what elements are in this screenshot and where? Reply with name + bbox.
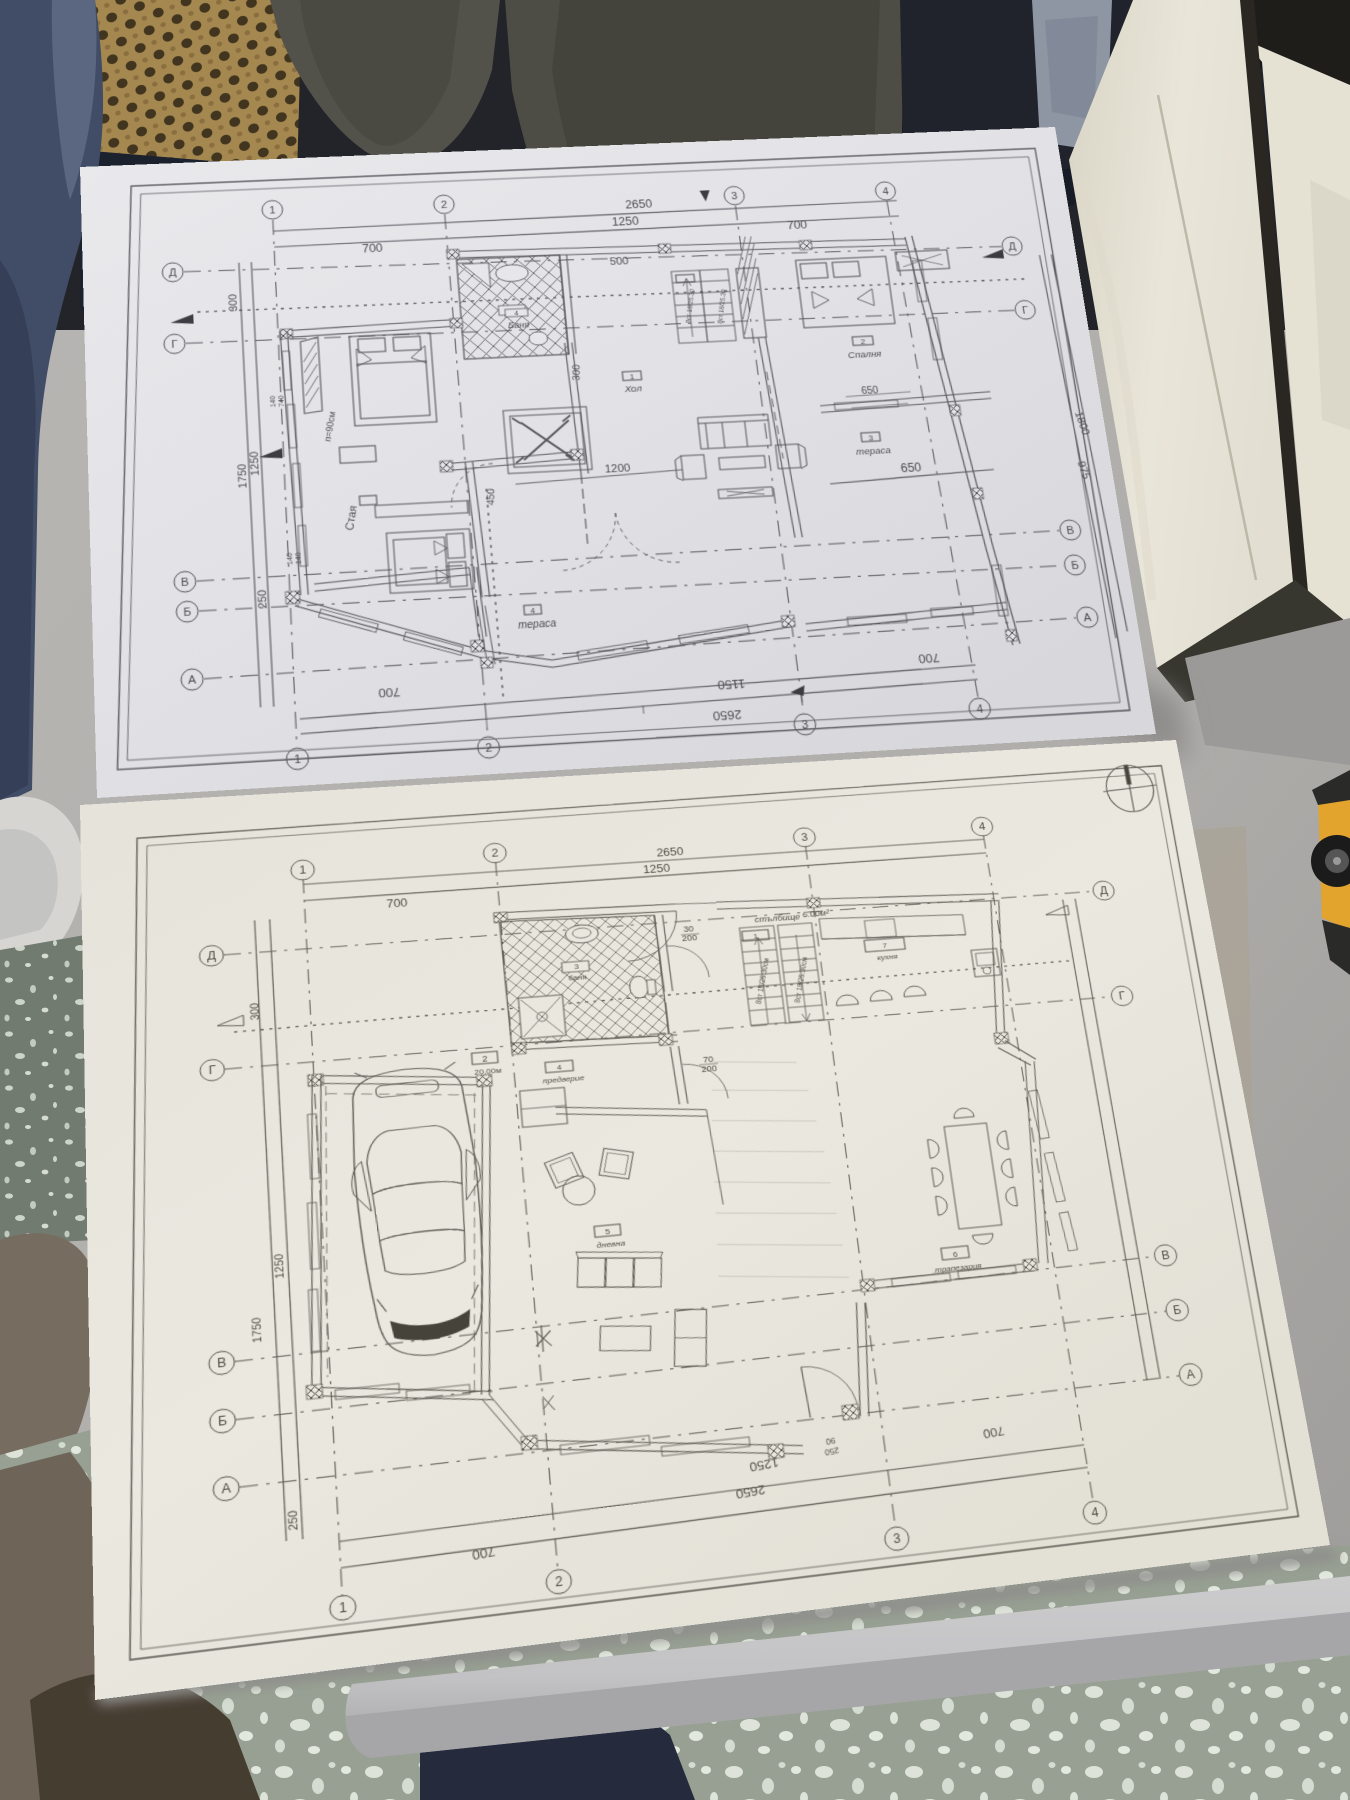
svg-text:700: 700 xyxy=(378,684,401,699)
svg-text:700: 700 xyxy=(786,219,808,232)
svg-text:140: 140 xyxy=(295,552,303,565)
svg-text:В: В xyxy=(217,1357,227,1371)
svg-text:Б: Б xyxy=(183,606,191,619)
svg-text:700: 700 xyxy=(362,242,383,255)
svg-text:6.00м²: 6.00м² xyxy=(802,908,831,919)
svg-text:2: 2 xyxy=(482,1053,488,1063)
svg-text:4: 4 xyxy=(514,311,519,318)
svg-text:3: 3 xyxy=(731,191,739,203)
svg-text:1: 1 xyxy=(339,1601,348,1616)
svg-text:1250: 1250 xyxy=(248,451,262,476)
svg-text:1: 1 xyxy=(269,205,276,217)
svg-text:Д: Д xyxy=(169,267,178,279)
svg-text:500: 500 xyxy=(609,255,629,267)
svg-text:1: 1 xyxy=(299,865,307,877)
svg-text:140: 140 xyxy=(270,395,278,407)
svg-text:250: 250 xyxy=(287,1509,302,1531)
svg-text:650: 650 xyxy=(900,461,922,475)
svg-text:700: 700 xyxy=(917,650,940,665)
svg-text:450: 450 xyxy=(485,488,497,505)
svg-text:4: 4 xyxy=(557,1063,562,1072)
svg-text:300: 300 xyxy=(227,294,241,312)
svg-text:Спалня: Спалня xyxy=(847,349,882,360)
svg-text:140: 140 xyxy=(286,552,294,565)
svg-text:3: 3 xyxy=(892,1532,901,1546)
svg-text:250: 250 xyxy=(256,589,270,609)
svg-text:740: 740 xyxy=(278,395,286,407)
svg-text:1250: 1250 xyxy=(643,863,671,876)
svg-text:3: 3 xyxy=(574,962,579,971)
svg-text:тераса: тераса xyxy=(518,618,558,632)
svg-text:1250: 1250 xyxy=(611,215,639,229)
svg-text:В: В xyxy=(181,576,189,589)
svg-text:2650: 2650 xyxy=(625,198,653,211)
svg-text:2: 2 xyxy=(485,742,493,756)
svg-text:1200: 1200 xyxy=(604,462,631,476)
svg-text:баня: баня xyxy=(568,972,587,982)
svg-text:3: 3 xyxy=(801,832,809,843)
svg-text:кухня: кухня xyxy=(877,952,898,962)
svg-text:90: 90 xyxy=(825,1435,836,1446)
svg-text:Д: Д xyxy=(207,950,217,962)
svg-text:2650: 2650 xyxy=(712,707,742,723)
svg-text:1750: 1750 xyxy=(251,1317,265,1344)
svg-text:2: 2 xyxy=(555,1575,564,1590)
svg-text:2: 2 xyxy=(491,848,499,860)
svg-text:тераса: тераса xyxy=(856,445,892,457)
svg-text:А: А xyxy=(188,674,198,688)
svg-text:Г: Г xyxy=(209,1065,217,1078)
svg-text:1: 1 xyxy=(753,932,759,941)
svg-text:А: А xyxy=(221,1482,231,1497)
svg-text:1250: 1250 xyxy=(273,1253,287,1279)
svg-text:300: 300 xyxy=(571,364,583,380)
svg-text:650: 650 xyxy=(861,385,879,397)
svg-text:1150: 1150 xyxy=(717,676,746,692)
svg-text:1: 1 xyxy=(294,753,302,767)
svg-text:Баня: Баня xyxy=(508,319,530,330)
svg-text:Г: Г xyxy=(171,339,178,351)
svg-text:1: 1 xyxy=(629,372,635,381)
svg-text:5: 5 xyxy=(605,1227,611,1237)
svg-text:Хол: Хол xyxy=(623,383,642,394)
svg-text:2: 2 xyxy=(440,199,447,211)
svg-text:300: 300 xyxy=(249,1002,262,1020)
svg-text:2650: 2650 xyxy=(656,847,684,860)
svg-text:Б: Б xyxy=(218,1415,228,1429)
svg-text:700: 700 xyxy=(386,898,408,911)
